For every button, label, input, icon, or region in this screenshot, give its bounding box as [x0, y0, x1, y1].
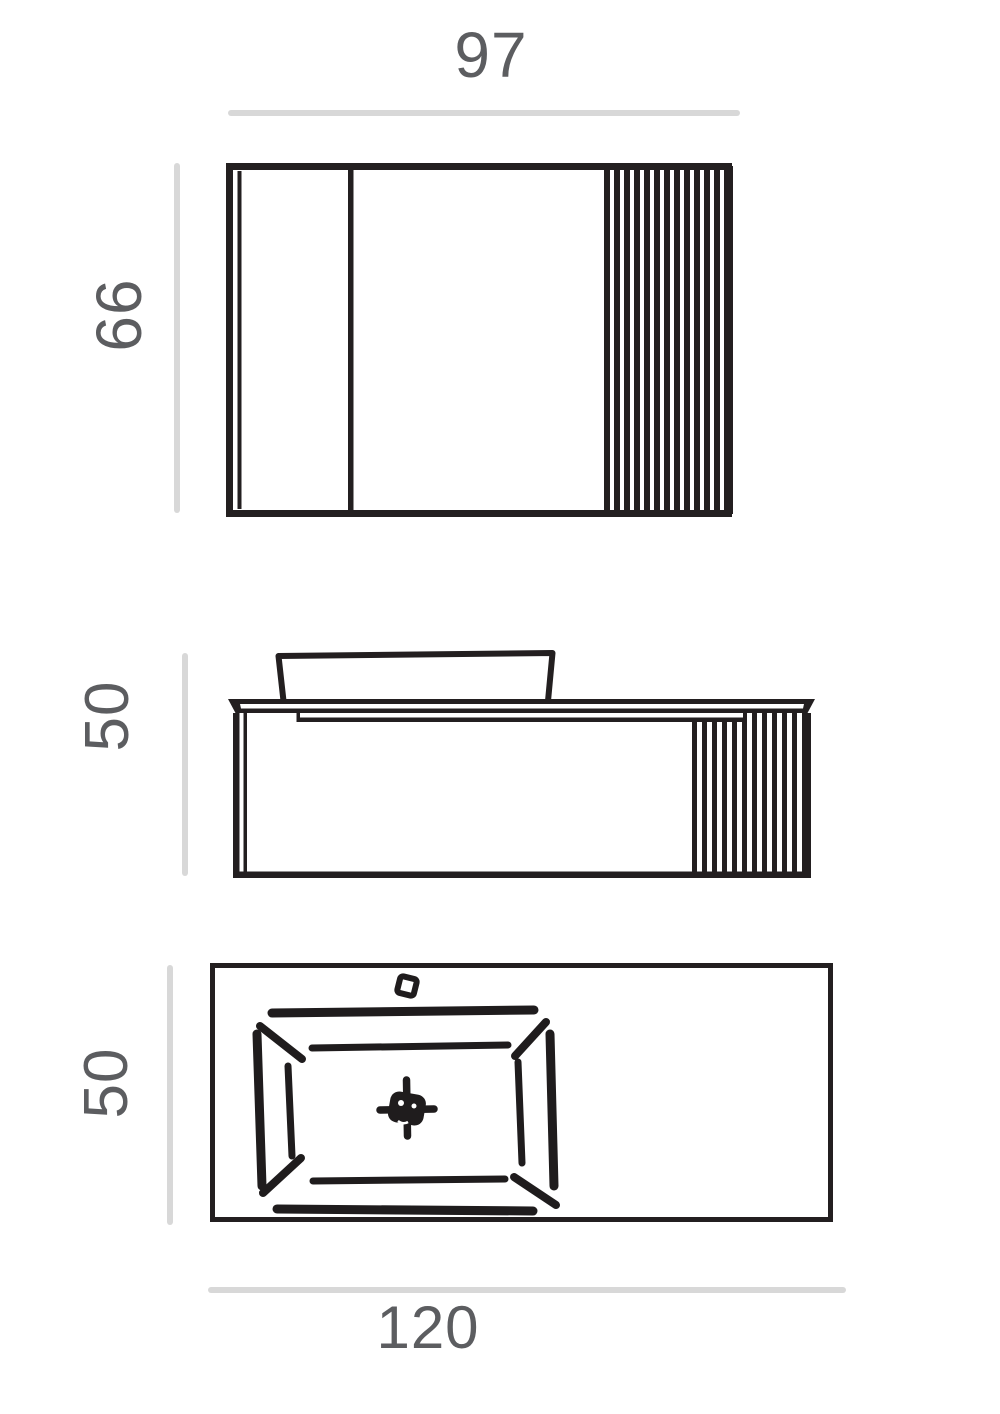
dimension-line-mirror-height — [174, 163, 180, 513]
cabinet-left-edge — [233, 713, 240, 878]
dimension-line-vanity-height — [182, 653, 188, 876]
spec-sheet-page: 97 66 50 — [0, 0, 1000, 1414]
dimension-label-mirror-width: 97 — [454, 23, 527, 87]
dimension-line-countertop-width — [208, 1287, 846, 1293]
countertop-basin-outline — [279, 653, 553, 701]
dimension-label-countertop-width: 120 — [376, 1298, 479, 1358]
dimension-line-mirror-width — [228, 110, 740, 116]
mirror-front-view-drawing — [222, 158, 738, 522]
countertop-slab-slit — [240, 704, 804, 709]
dimension-label-vanity-height: 50 — [77, 681, 139, 752]
mirror-door-divider — [348, 170, 354, 510]
cabinet-left-inner-line — [244, 713, 248, 873]
countertop-top-view-drawing — [165, 955, 855, 1235]
cabinet-slatted-panel — [692, 713, 805, 872]
mirror-right-border — [726, 166, 733, 514]
cabinet-bottom-edge — [233, 872, 811, 879]
cabinet-right-edge — [805, 713, 812, 878]
mirror-door-edge-line — [238, 171, 242, 509]
dimension-label-mirror-height: 66 — [87, 278, 151, 351]
vanity-front-view-drawing — [225, 645, 820, 885]
faucet-hole — [397, 976, 418, 997]
drawer-recess-line — [297, 718, 747, 723]
dimension-label-countertop-depth: 50 — [76, 1048, 138, 1119]
mirror-slatted-panel — [604, 170, 726, 510]
